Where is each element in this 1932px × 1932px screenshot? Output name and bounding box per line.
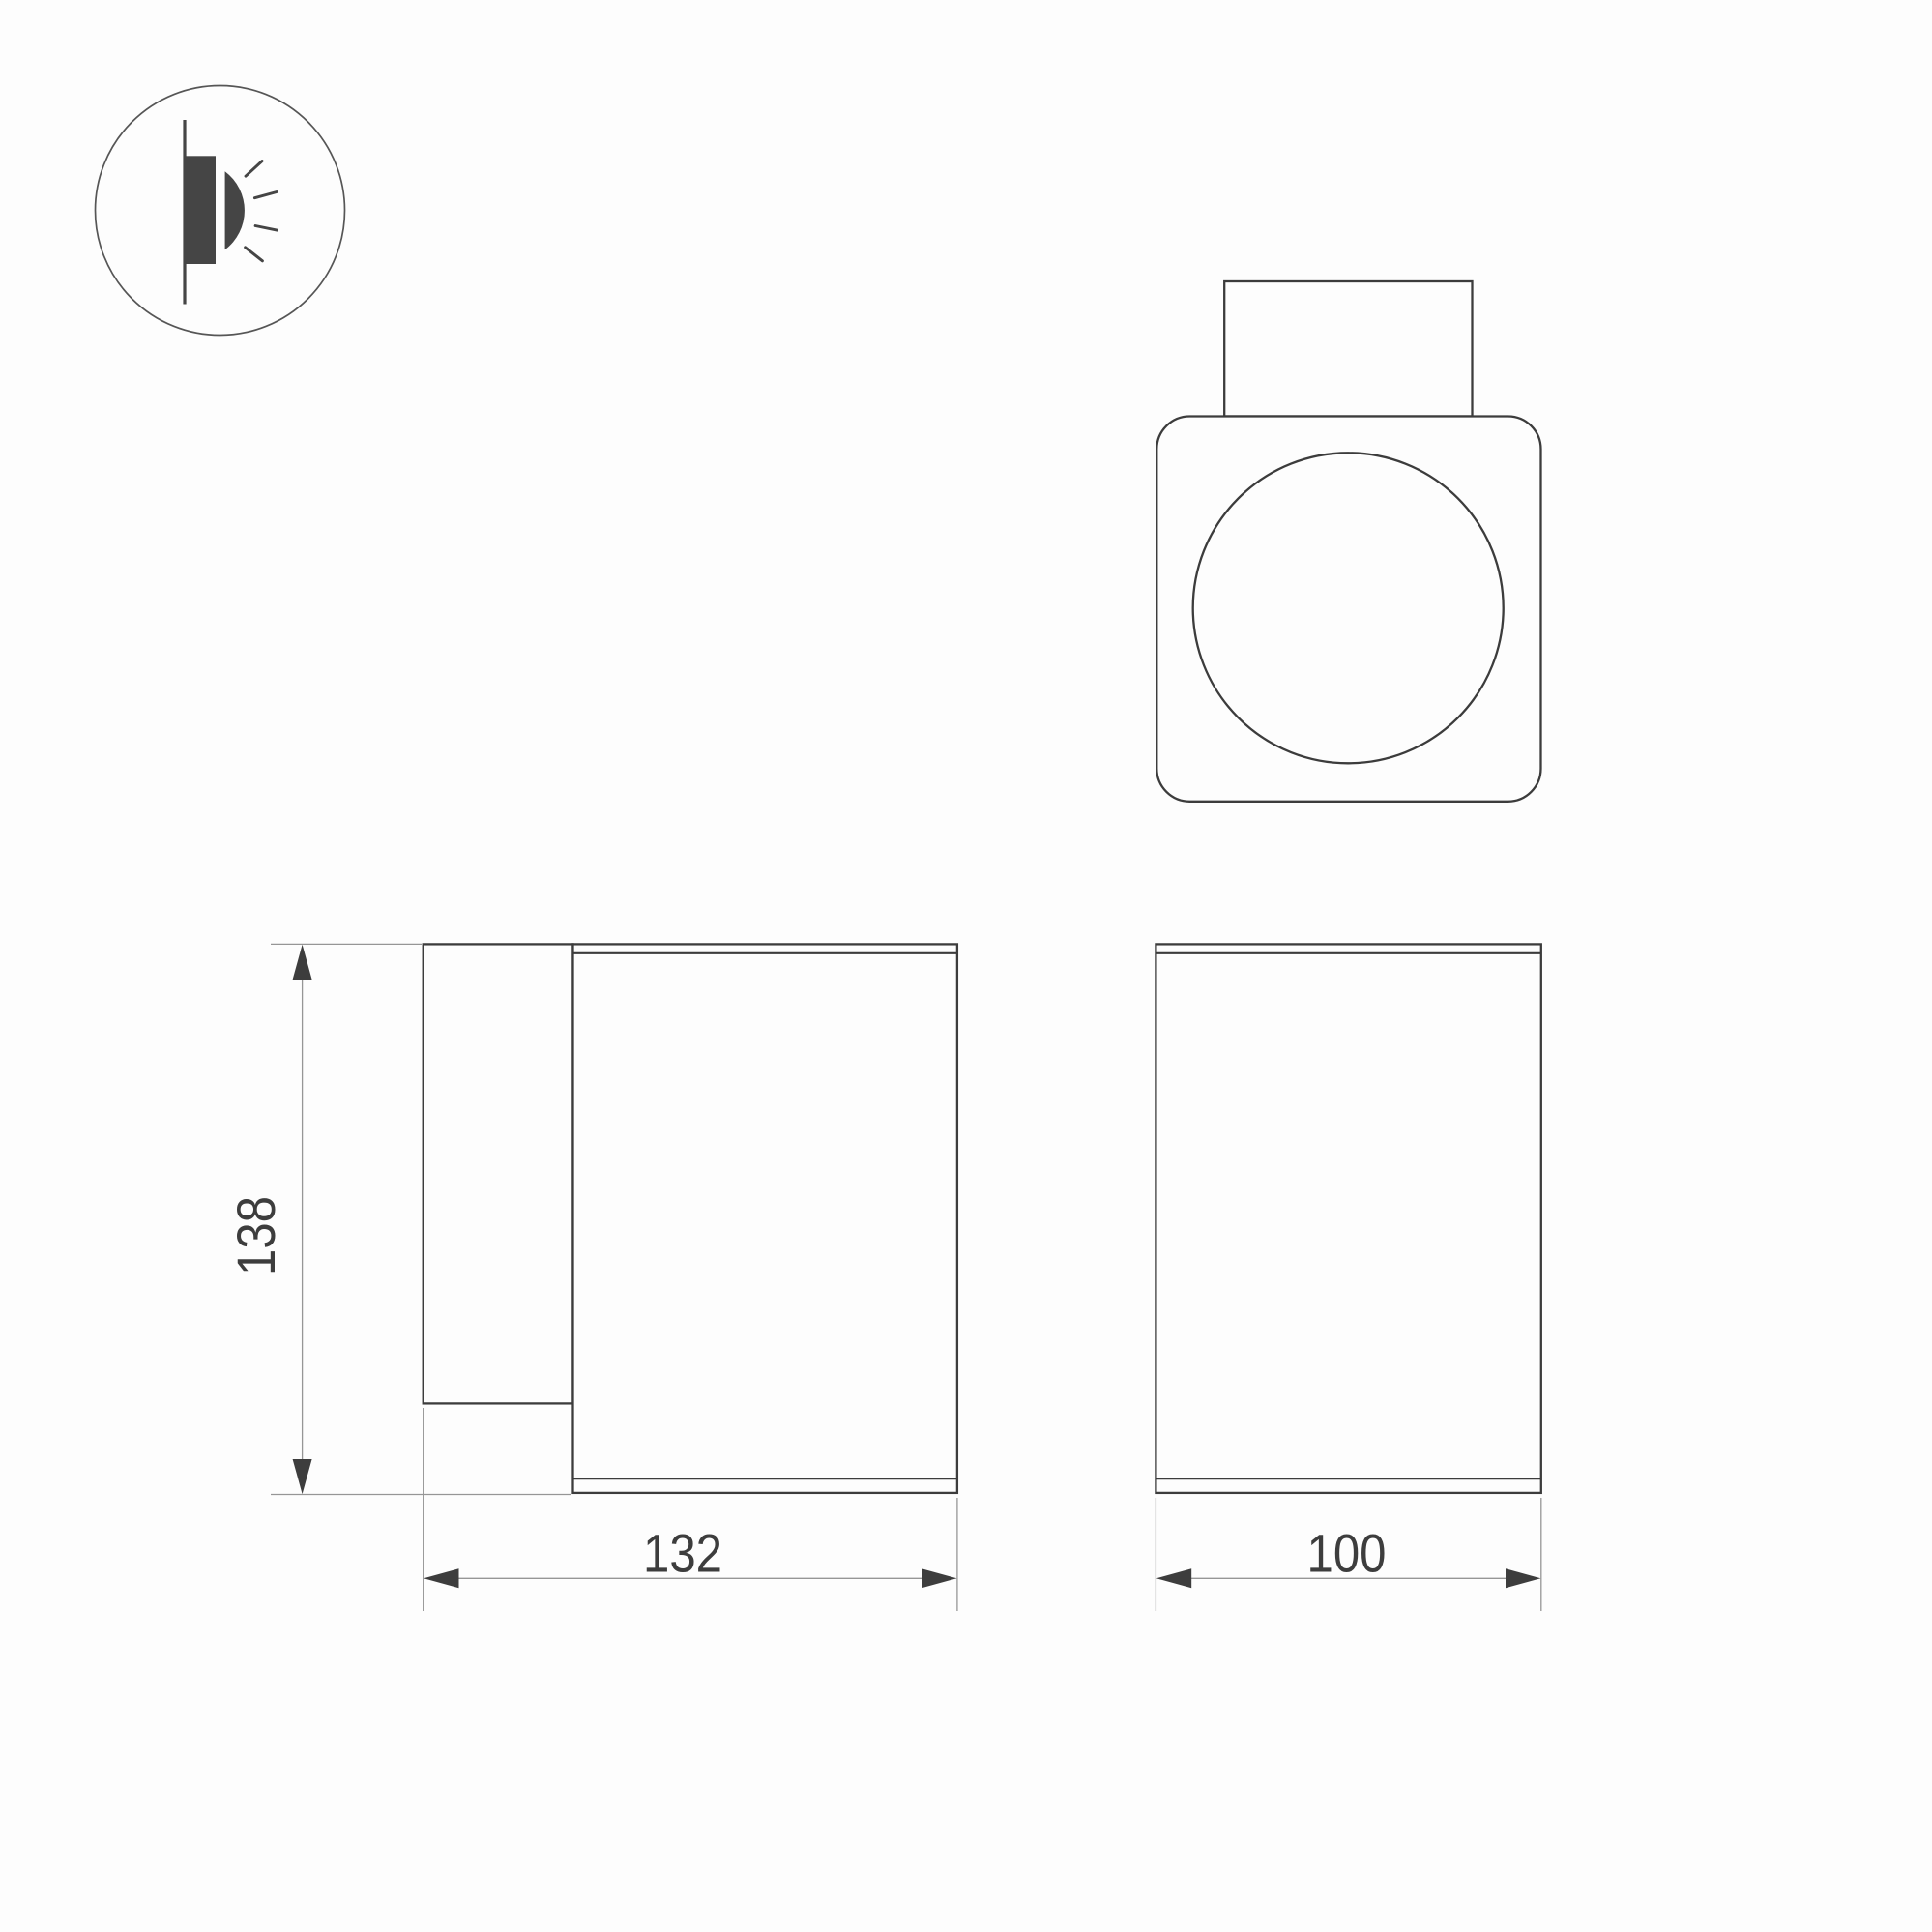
svg-text:100: 100 [1307, 1522, 1387, 1583]
svg-text:132: 132 [643, 1522, 722, 1583]
svg-text:138: 138 [225, 1196, 286, 1275]
